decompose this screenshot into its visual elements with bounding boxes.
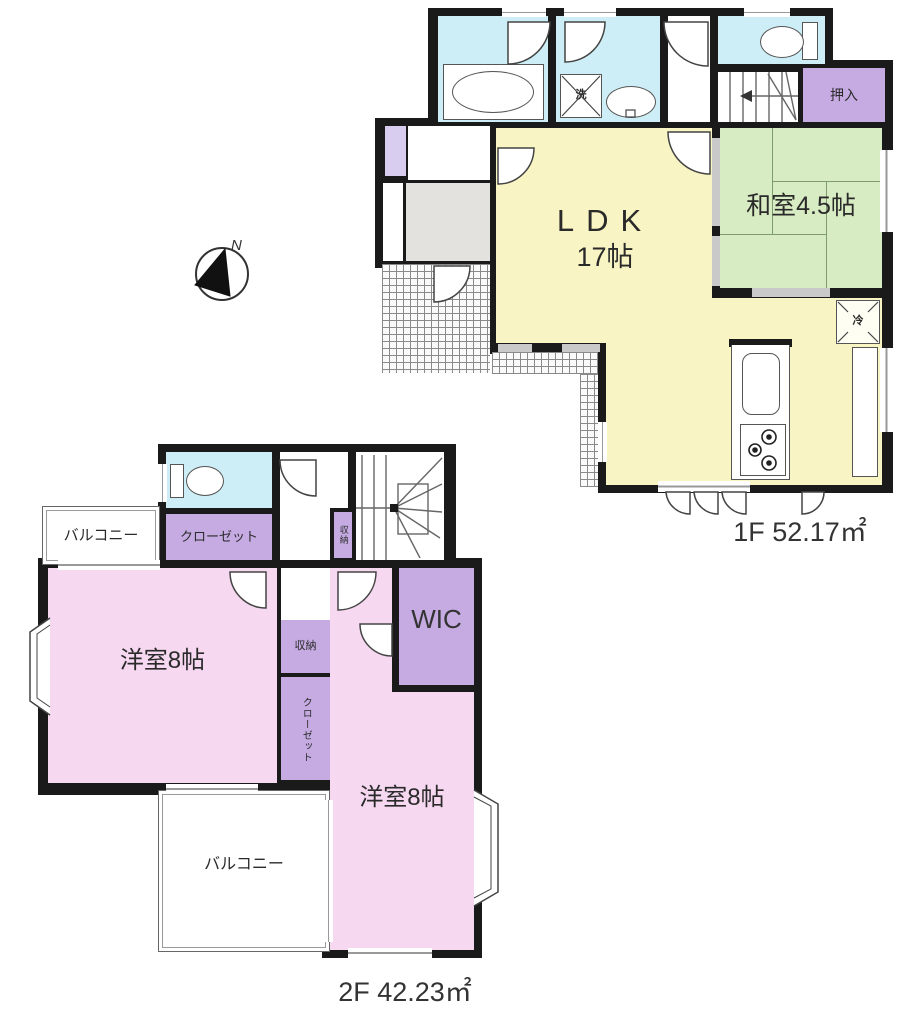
storage-middle-label: 収納: [281, 620, 330, 673]
toilet-tank-2f: [170, 464, 184, 498]
toilet-tank-1f: [802, 22, 818, 60]
tatami-line: [720, 234, 826, 235]
window: [58, 560, 160, 570]
toilet-bowl-1f: [760, 26, 804, 58]
window: [158, 464, 167, 502]
sliding-door: [712, 138, 720, 226]
window: [658, 481, 750, 492]
closet-upper-label: クローゼット: [166, 514, 272, 560]
fridge-label: 冷: [836, 300, 880, 344]
balcony-upper-label: バルコニー: [42, 506, 160, 565]
balcony-lower-label: バルコニー: [158, 845, 330, 885]
bedroom2-label: 洋室8帖: [330, 778, 474, 818]
stairs-2f: [356, 452, 444, 560]
window: [166, 784, 258, 794]
balcony-door: [324, 800, 333, 942]
window: [880, 348, 893, 432]
entry-porch: [492, 352, 598, 374]
floor2-area-label: 2F 42.23㎡: [305, 974, 505, 1010]
compass-north-label: N: [231, 237, 242, 254]
hall-pocket: [281, 568, 330, 620]
oshiire-label: 押入: [803, 68, 885, 122]
wic-label: WIC: [399, 600, 474, 640]
tatami-room-label: 和室4.5帖: [720, 186, 882, 226]
window: [880, 150, 893, 232]
hallway-1f: [668, 16, 710, 122]
bedroom1-label: 洋室8帖: [48, 640, 277, 682]
toilet-bowl-2f: [186, 466, 224, 496]
genkan: [406, 183, 490, 261]
laundry-label: 洗: [560, 74, 602, 118]
tatami-line: [772, 181, 882, 182]
window: [562, 344, 600, 352]
window: [564, 8, 616, 17]
window: [348, 948, 432, 958]
ldk-label: LDK 17帖: [505, 188, 705, 288]
stairs-1f: [718, 72, 798, 122]
casement-window-arc: [722, 492, 746, 514]
compass-needle: [195, 249, 230, 296]
closet-vertical-label: クローゼット: [290, 682, 320, 777]
entry-porch: [382, 264, 490, 373]
entry-side-strip: [383, 183, 403, 261]
stove: [740, 424, 786, 476]
window: [498, 344, 532, 352]
ldk-size: 17帖: [576, 243, 633, 271]
window: [744, 8, 790, 17]
entry-porch: [580, 374, 598, 487]
casement-window-arc: [694, 492, 718, 514]
compass: N: [195, 237, 248, 300]
casement-window-arc: [666, 492, 690, 514]
window: [502, 8, 546, 17]
sliding-door: [712, 236, 720, 286]
window: [598, 422, 607, 462]
entry-hall: [408, 126, 490, 180]
floorplan-canvas: 洗 押入 和室4.5帖 LDK 17帖 冷: [0, 0, 922, 1024]
kitchen-sink: [742, 353, 780, 415]
bathtub: [452, 71, 534, 113]
storage-stair-label: 収納: [334, 512, 352, 558]
ldk-name: LDK: [557, 205, 653, 238]
floor1-area-label: 1F 52.17㎡: [700, 514, 900, 550]
washbasin: [606, 86, 656, 118]
casement-window-arc: [802, 492, 824, 514]
compass-circle: [196, 248, 248, 300]
shoe-cabinet: [385, 126, 406, 176]
sliding-door: [752, 288, 830, 297]
kitchen-side-counter: [852, 347, 878, 477]
